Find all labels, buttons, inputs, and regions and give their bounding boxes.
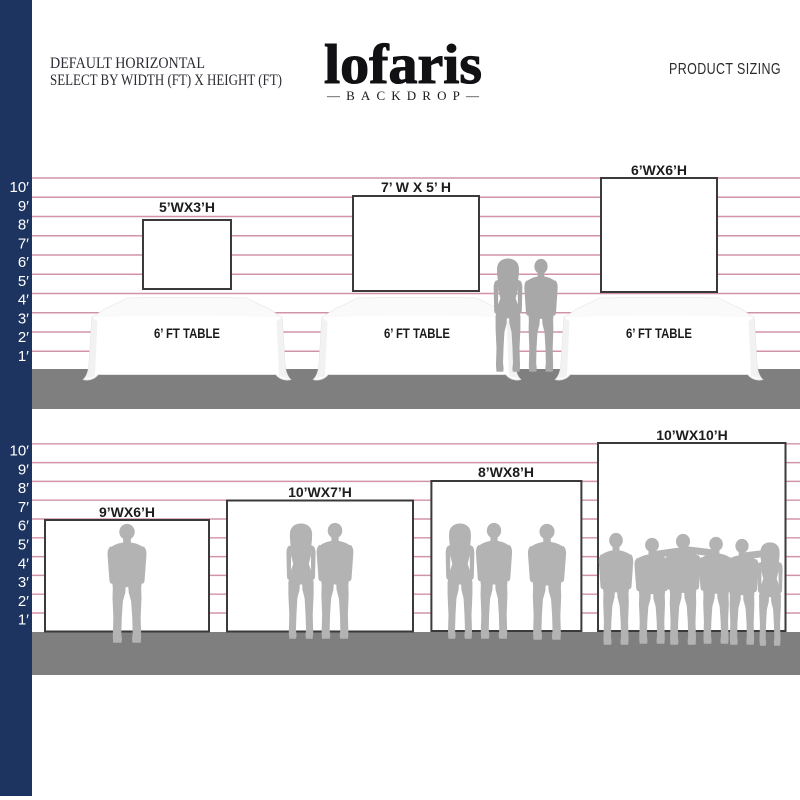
svg-text:SELECT BY WIDTH (FT) X HEIGHT: SELECT BY WIDTH (FT) X HEIGHT (FT) xyxy=(50,72,282,89)
svg-text:8′: 8′ xyxy=(18,217,29,234)
svg-text:9′: 9′ xyxy=(18,198,29,215)
svg-text:6’ FT TABLE: 6’ FT TABLE xyxy=(154,326,220,341)
svg-text:3′: 3′ xyxy=(18,574,29,591)
svg-text:6’ FT TABLE: 6’ FT TABLE xyxy=(626,326,692,341)
svg-text:6’WX6’H: 6’WX6’H xyxy=(631,162,687,178)
svg-text:7′: 7′ xyxy=(18,499,29,516)
svg-text:6’ FT TABLE: 6’ FT TABLE xyxy=(384,326,450,341)
svg-text:2′: 2′ xyxy=(18,593,29,610)
svg-text:1′: 1′ xyxy=(18,348,29,365)
svg-text:7’ W X 5’ H: 7’ W X 5’ H xyxy=(381,179,451,195)
svg-text:4′: 4′ xyxy=(18,292,29,309)
svg-text:10′: 10′ xyxy=(10,443,30,460)
svg-text:6′: 6′ xyxy=(18,518,29,535)
svg-text:DEFAULT HORIZONTAL: DEFAULT HORIZONTAL xyxy=(50,55,205,72)
svg-text:1′: 1′ xyxy=(18,612,29,629)
svg-text:10’WX10’H: 10’WX10’H xyxy=(656,427,728,443)
svg-text:9’WX6’H: 9’WX6’H xyxy=(99,504,155,520)
svg-text:5′: 5′ xyxy=(18,273,29,290)
svg-text:2′: 2′ xyxy=(18,329,29,346)
svg-text:4′: 4′ xyxy=(18,555,29,572)
svg-text:8′: 8′ xyxy=(18,480,29,497)
svg-text:6′: 6′ xyxy=(18,254,29,271)
svg-text:10’WX7’H: 10’WX7’H xyxy=(288,484,352,500)
svg-text:7′: 7′ xyxy=(18,235,29,252)
svg-text:5′: 5′ xyxy=(18,537,29,554)
svg-text:5’WX3’H: 5’WX3’H xyxy=(159,199,215,215)
svg-text:PRODUCT SIZING: PRODUCT SIZING xyxy=(669,61,781,78)
svg-text:3′: 3′ xyxy=(18,310,29,327)
svg-text:lofaris: lofaris xyxy=(324,34,482,96)
svg-text:8’WX8’H: 8’WX8’H xyxy=(478,464,534,480)
svg-text:10′: 10′ xyxy=(10,179,30,196)
svg-text:9′: 9′ xyxy=(18,461,29,478)
